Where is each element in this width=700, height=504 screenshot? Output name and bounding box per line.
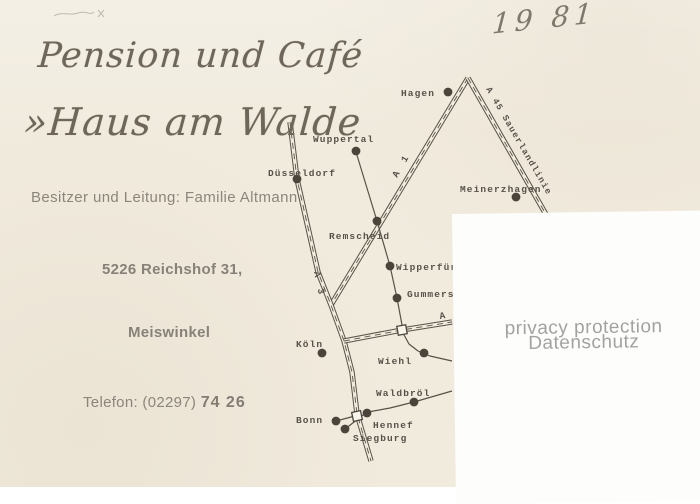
city-label-wiehl: Wiehl	[378, 356, 412, 367]
locality-line: Meiswinkel	[128, 324, 210, 341]
pension-title: Pension und Café	[37, 36, 365, 76]
city-dot-wiehl	[420, 349, 429, 358]
city-dot-bonn	[332, 417, 341, 426]
road-label: A 3	[311, 270, 327, 298]
city-label-hagen: Hagen	[401, 88, 435, 99]
address-line: 5226 Reichshof 31,	[102, 261, 242, 278]
postcard: HagenWuppertalDüsseldorfRemscheidMeinerz…	[0, 0, 700, 487]
junction-square	[352, 411, 363, 422]
city-label-hennef: Hennef	[373, 420, 414, 431]
city-dot-hennef	[363, 409, 372, 418]
city-dot-siegburg	[341, 425, 350, 434]
junction-square	[397, 325, 407, 335]
phone-prefix: Telefon: (02297)	[83, 394, 201, 411]
city-label-bonn: Bonn	[296, 415, 323, 426]
city-dot-gummersbach	[393, 294, 402, 303]
road-label: A 45 Sauerlandlinie	[483, 86, 553, 198]
house-name-title: »Haus am Walde	[22, 100, 362, 144]
city-dot-hagen	[444, 88, 453, 97]
city-dot-wuppertal	[352, 147, 361, 156]
city-label-siegburg: Siegburg	[353, 433, 407, 444]
phone-number: 74 26	[201, 394, 246, 411]
pencil-scribble	[54, 10, 104, 17]
phone-line: Telefon: (02297) 74 26	[83, 394, 246, 412]
privacy-overlay: privacy protection Datenschutz	[452, 210, 700, 504]
city-label-remscheid: Remscheid	[329, 231, 390, 242]
owner-line: Besitzer und Leitung: Familie Altmann	[31, 189, 298, 206]
city-label-meinerzhagen: Meinerzhagen	[460, 184, 542, 195]
city-label-köln: Köln	[296, 339, 323, 350]
city-label-waldbröl: Waldbröl	[376, 388, 430, 399]
datenschutz-text: Datenschutz	[454, 333, 700, 352]
city-dot-wipperfürth	[386, 262, 395, 271]
city-dot-remscheid	[373, 217, 382, 226]
city-label-düsseldorf: Düsseldorf	[268, 168, 336, 179]
